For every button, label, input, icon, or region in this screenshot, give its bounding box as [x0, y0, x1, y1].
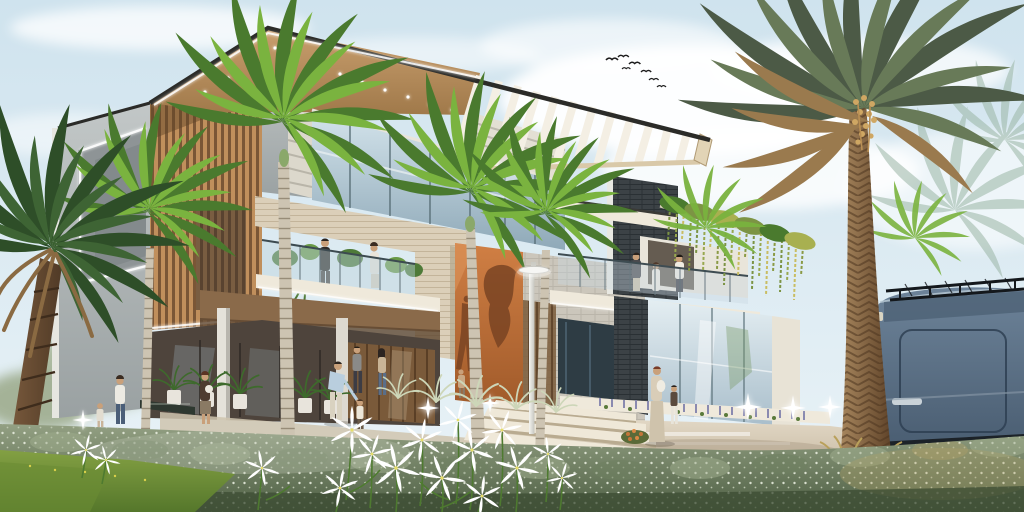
- terracotta-feature-wall: [455, 243, 523, 408]
- architectural-render: Modern tropical villa — exterior archite…: [0, 0, 1024, 512]
- dark-window: [558, 318, 618, 400]
